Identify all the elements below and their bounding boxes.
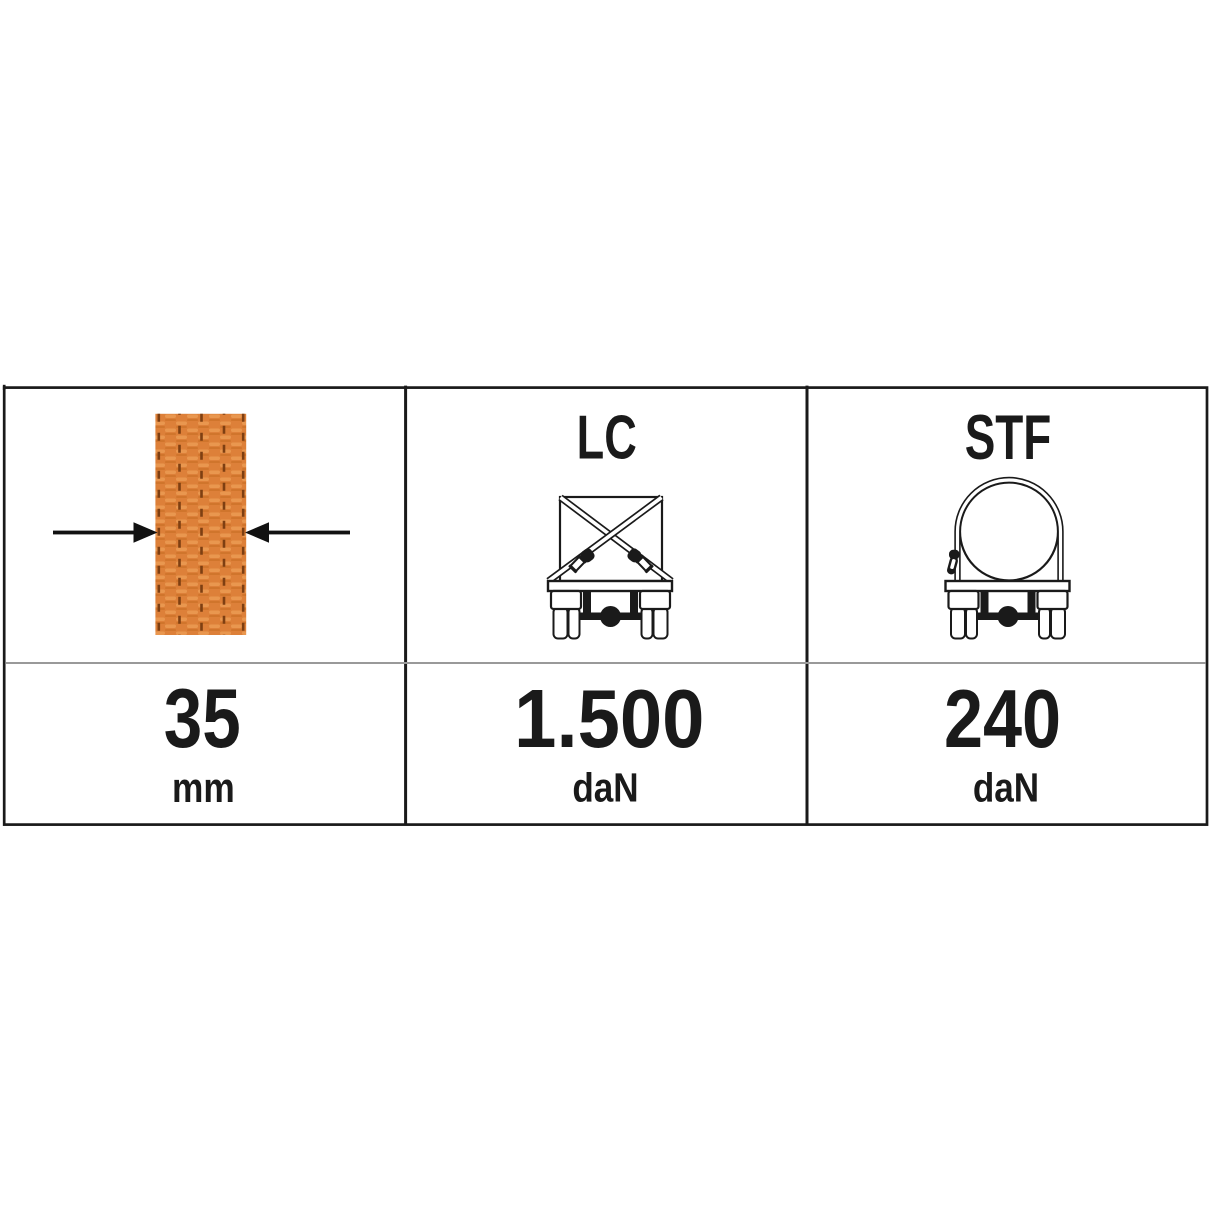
svg-text:1.500: 1.500 [514,672,704,765]
svg-text:daN: daN [572,765,638,811]
svg-text:LC: LC [577,402,637,472]
svg-text:240: 240 [944,674,1061,766]
svg-text:daN: daN [973,765,1039,811]
svg-text:STF: STF [965,402,1052,473]
svg-text:mm: mm [172,765,235,812]
svg-text:35: 35 [164,673,241,766]
